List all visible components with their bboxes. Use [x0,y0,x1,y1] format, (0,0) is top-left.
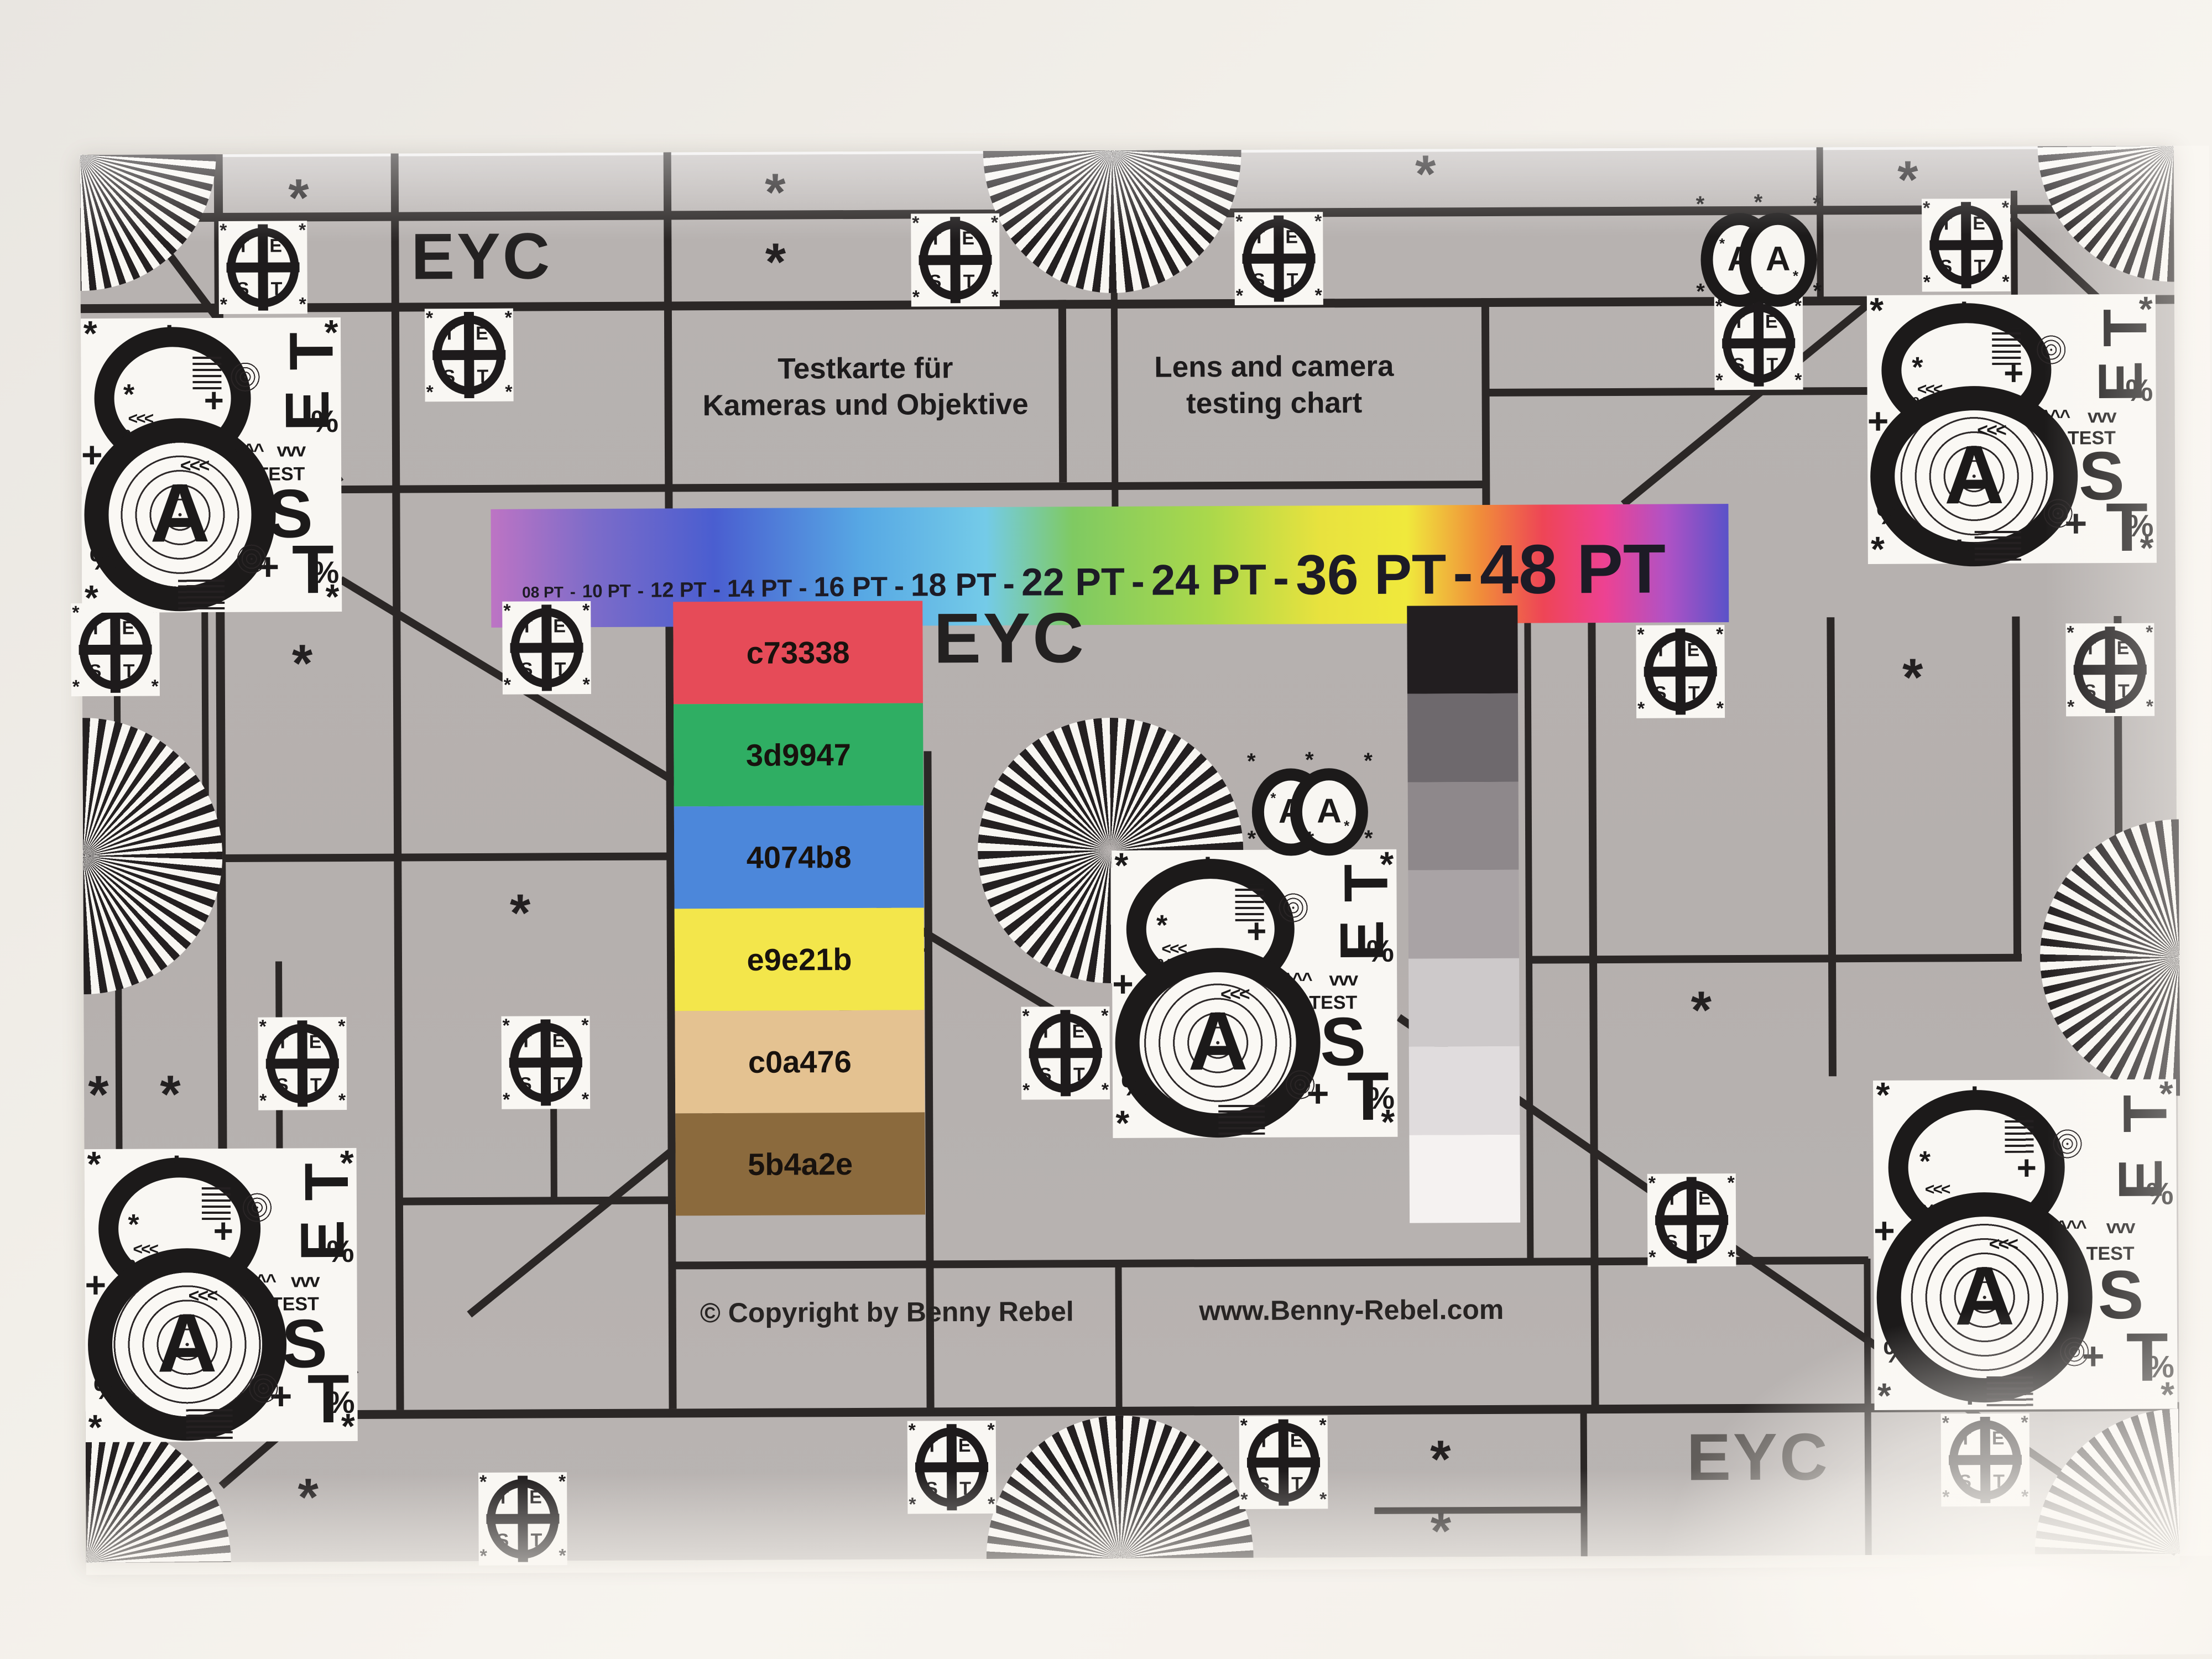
test-roundel-cross-horizontal [1949,1455,2022,1465]
resolution-stripes [178,580,225,609]
percent-mark: % [1366,936,1394,967]
asterisk-icon: * [1114,848,1128,883]
test-roundel: T E S T * * * * [2065,623,2154,717]
asterisk-icon: * [1247,750,1256,773]
concentric-target [231,362,260,392]
resolution-stripes [1992,328,2021,365]
asterisk-icon: * [1813,280,1822,302]
asterisk-icon: * [1648,1174,1656,1193]
twin-8a-mark: A * A * * * * * * * [1251,762,1368,838]
asterisk-icon: * [1912,353,1923,382]
asterisk-icon: * [84,316,97,351]
asterisk-icon: * [582,1090,589,1109]
pt-separator: - [570,584,576,601]
asterisk-icon: * [2146,623,2153,642]
plus-cross: + [1874,1212,1895,1249]
grid-line [1486,387,1867,397]
letter-a: A [1188,999,1248,1082]
asterisk-icon: * [72,603,79,622]
test-roundel-letter: E [962,228,974,249]
grid-line [2012,617,2021,958]
big-8a-test-box: * * * * * <<< % + A T E ^^^ vvv <<< TEST… [1112,849,1397,1138]
plus-cross: + [1197,847,1219,884]
test-letter-t: T [1335,864,1397,902]
test-letter-t: T [296,1163,358,1201]
asterisk-icon: * [1923,199,1930,217]
asterisk-mark: * [510,887,531,940]
asterisk-icon: * [259,1092,267,1110]
title-english-line2: testing chart [1063,384,1486,422]
asterisk-icon: * [259,1018,266,1036]
test-roundel-letter: S [1253,270,1265,291]
resolution-stripes [192,353,221,389]
test-letter-t: T [2094,309,2156,347]
pt-labels-row: 08 PT - 10 PT - 12 PT - 14 PT - 16 PT - … [491,534,1729,609]
test-roundel-letter: E [2117,638,2130,659]
patch-hex-label: c73338 [747,634,850,671]
asterisk-icon: * [2002,199,2009,217]
concentric-target [2036,335,2066,364]
pt-label: 08 PT [522,585,564,600]
test-roundel-letter: T [963,271,975,293]
asterisk-icon: * [1101,1006,1108,1025]
test-roundel-letter: T [1258,1431,1270,1452]
asterisk-icon: * [502,1016,509,1035]
asterisk-mark: * [1897,154,1918,207]
asterisk-mark: * [160,1068,181,1121]
test-roundel-cross-horizontal [1722,338,1795,349]
test-roundel-cross-horizontal [79,645,152,655]
test-roundel-letter: S [497,1530,509,1552]
asterisk-icon: * [123,380,134,409]
asterisk-icon: * [128,1211,139,1239]
test-roundel-letter: T [1993,1471,2005,1493]
plus-cross: + [1192,1104,1214,1140]
asterisk-icon: * [1648,1248,1656,1267]
test-roundel-letter: T [1733,311,1745,333]
asterisk-icon: * [909,1495,916,1514]
patch-hex-label: c0a476 [748,1044,852,1080]
chart-group: 08 PT - 10 PT - 12 PT - 14 PT - 16 PT - … [0,0,2212,1659]
big-8a-test-box: * * * * * <<< % + A T E ^^^ vvv <<< TEST… [1867,294,2157,564]
letter-a: A [157,1301,217,1384]
test-roundel-letter: S [237,279,249,300]
test-roundel-letter: T [237,236,249,257]
letter-a: A [1944,433,2004,516]
gray-step [1408,782,1519,870]
big-8a-test-box: * * * * * <<< % + A T E ^^^ vvv <<< TEST… [81,317,342,613]
pt-separator: - [713,578,721,601]
percent-mark: % [90,544,117,575]
chevrons-left: <<< [1989,1235,2017,1254]
asterisk-icon: * [1942,1413,1949,1432]
eyc-text-center: EYC [933,603,1086,674]
asterisk-mark: * [292,637,313,690]
test-roundel-letter: T [1960,1428,1971,1449]
test-roundel: T E S T * * * * [478,1472,567,1566]
patch-hex-label: 4074b8 [747,839,852,875]
asterisk-icon: * [1236,286,1243,305]
test-roundel-letter: E [1973,213,1985,234]
chevrons-up: ^^^ [246,1271,275,1290]
test-roundel-cross-horizontal [1929,240,2002,251]
chevrons-up: ^^^ [233,441,263,460]
asterisk-icon: * [72,677,80,696]
test-roundel-letter: T [123,661,135,682]
pt-label: 16 PT [813,573,888,601]
asterisk-icon: * [1923,273,1931,291]
asterisk-icon: * [1248,828,1256,850]
title-german: Testkarte für Kameras und Objektive [668,349,1063,424]
asterisk-icon: * [1022,1081,1030,1100]
grid-line [1588,618,1599,1408]
asterisk-icon: * [1870,293,1884,328]
asterisk-icon: * [1793,268,1798,285]
test-roundel-letter: S [929,271,942,293]
test-roundel: T E S T * * * * [1922,199,2011,292]
test-roundel-cross-horizontal [432,350,505,361]
percent-mark: % [93,1373,121,1404]
chevrons-left: <<< [180,456,208,475]
test-roundel-letter: T [926,1435,938,1457]
pt-label: 10 PT [582,582,631,600]
grid-line [1580,1408,1588,1556]
test-roundel: T E S T * * * * [1941,1413,2030,1507]
patch-hex-label: e9e21b [747,941,852,978]
asterisk-icon: * [1305,749,1314,771]
test-roundel-cross-horizontal [1242,253,1315,264]
grid-line [1530,954,2022,964]
asterisk-icon: * [909,1421,916,1440]
letter-a: A [1766,239,1791,279]
plus-cross: + [159,315,180,352]
concentric-target [1285,1070,1315,1100]
test-roundel-cross-horizontal [915,1462,988,1473]
pt-separator: - [1453,542,1473,603]
test-roundel-letter: T [1766,354,1778,376]
patch-hex-label: 5b4a2e [748,1146,853,1182]
test-roundel-letter: E [476,323,488,345]
asterisk-icon: * [991,288,998,306]
pt-label: 18 PT [911,569,997,602]
asterisk-mark: * [1691,984,1712,1037]
asterisk-icon: * [505,383,512,401]
test-roundel: T E S T * * * * [1239,1416,1328,1509]
grid-line [1115,1264,1122,1410]
test-roundel-cross-horizontal [2074,665,2147,675]
test-roundel-letter: T [1073,1064,1085,1086]
plus-cross: + [1112,966,1134,1002]
asterisk-icon: * [1314,212,1322,231]
asterisk-icon: * [582,601,589,620]
resolution-stripes [1986,1376,2033,1406]
asterisk-icon: * [1364,827,1373,849]
test-roundel-cross-horizontal [1655,1215,1728,1225]
asterisk-icon: * [299,221,306,239]
color-patch-red: c73338 [673,601,923,704]
asterisk-icon: * [1877,1378,1891,1413]
asterisk-icon: * [85,580,98,615]
color-patch-blue: 4074b8 [674,805,924,909]
percent-mark: % [327,1387,355,1418]
test-roundel-letter: S [1654,683,1667,705]
test-roundel-cross-horizontal [227,262,300,273]
test-roundel-letter: S [1959,1471,1971,1493]
concentric-target [2053,1129,2083,1159]
grid-line [400,1196,672,1205]
asterisk-icon: * [1696,280,1705,302]
pt-label: 14 PT [727,576,792,601]
test-roundel-letter: T [2085,638,2096,659]
test-roundel-letter: E [1072,1021,1085,1042]
grid-line [1864,1259,1871,1555]
test-roundel-letter: E [1992,1428,2005,1449]
asterisk-mark: * [1902,651,1923,705]
grayscale-step-wedge [1407,606,1520,1223]
test-roundel-letter: E [529,1486,542,1508]
chevrons-down: vvv [2088,407,2116,426]
concentric-target [1279,893,1308,922]
test-roundel-letter: S [1039,1064,1052,1086]
test-roundel-letter: S [1732,354,1745,376]
grid-line [1827,617,1837,1076]
test-roundel-letter: S [519,1074,532,1095]
asterisk-icon: * [1364,750,1373,772]
chevrons-down: vvv [276,441,305,460]
test-roundel-letter: E [269,235,282,257]
test-roundel-cross-horizontal [1644,666,1717,677]
test-roundel-letter: T [277,1031,289,1053]
test-roundel-letter: S [442,366,455,388]
pt-separator: - [1131,562,1145,602]
plus-cross: + [155,579,176,615]
plus-cross: + [81,436,103,473]
website-text: www.Benny-Rebel.com [1125,1293,1578,1327]
test-roundel: T E S T * * * * [1636,625,1725,718]
grid-line [1524,619,1533,1260]
test-roundel-letter: S [1665,1231,1678,1253]
asterisk-icon: * [426,383,433,401]
test-roundel-letter: T [1699,1231,1711,1253]
test-roundel-letter: T [1291,1473,1303,1495]
asterisk-icon: * [220,295,227,314]
chevrons-left: <<< [189,1286,217,1305]
plus-cross: + [161,1408,183,1445]
chevrons-left: <<< [1925,1182,1949,1198]
test-roundel-cross-horizontal [1029,1048,1102,1058]
asterisk-icon: * [1319,1490,1327,1509]
asterisk-icon: * [559,1546,566,1565]
asterisk-icon: * [1754,282,1763,304]
plus-cross: + [1964,1077,1985,1113]
asterisk-icon: * [426,309,433,327]
test-roundel-letter: E [1765,311,1778,333]
test-roundel-letter: T [1253,227,1265,248]
big-8a-test-box: * * * * * <<< % + A T E ^^^ vvv <<< TEST… [1873,1079,2178,1410]
letter-a: A [150,471,210,554]
asterisk-icon: * [1715,371,1723,390]
test-roundel-letter: T [444,323,455,345]
asterisk-icon: * [1919,1147,1931,1176]
test-roundel-letter: E [553,615,566,637]
test-roundel-letter: T [521,616,533,638]
asterisk-icon: * [1156,911,1167,940]
test-roundel-letter: E [122,618,134,639]
color-patch-brown: 5b4a2e [675,1112,925,1215]
chevrons-up: ^^^ [1282,971,1312,989]
title-german-line1: Testkarte für [668,349,1062,388]
pt-separator: - [894,571,904,601]
chevrons-left: <<< [1977,421,2005,440]
asterisk-mark: * [1430,1433,1451,1486]
asterisk-mark: * [298,1471,319,1524]
asterisk-icon: * [1876,1077,1890,1113]
eyc-text-top: EYC [411,223,552,289]
plus-cross: + [2017,1151,2037,1186]
test-roundel-letter: T [531,1530,542,1551]
asterisk-mark: * [1431,1505,1452,1558]
test-roundel: T E S T * * * * [502,601,591,695]
asterisk-icon: * [1696,193,1705,215]
test-roundel-letter: T [1655,640,1667,661]
asterisk-icon: * [88,1410,102,1445]
test-roundel-letter: T [959,1478,971,1500]
chevrons-up: ^^^ [2056,1218,2086,1237]
pt-separator: - [638,582,644,601]
chevrons-left: <<< [1220,985,1249,1004]
asterisk-icon: * [152,677,159,696]
color-patch-yellow: e9e21b [675,907,925,1011]
asterisk-icon: * [991,213,998,232]
chevrons-down: vvv [291,1271,319,1290]
asterisk-icon: * [505,309,512,327]
pt-label: 48 PT [1480,534,1666,604]
test-roundel-letter: T [555,659,566,680]
test-roundel-letter: E [1285,226,1298,248]
asterisk-icon: * [1719,235,1725,252]
pt-separator: - [1003,566,1015,601]
test-roundel-cross-horizontal [266,1058,339,1069]
asterisk-icon: * [87,1146,101,1182]
test-roundel: T E S T * * * * [425,309,514,402]
test-roundel-letter: T [554,1073,565,1095]
asterisk-icon: * [504,676,511,695]
asterisk-icon: * [1794,371,1802,390]
asterisk-icon: * [2002,273,2009,291]
asterisk-icon: * [1102,1081,1109,1099]
gray-step [1409,1046,1520,1135]
test-roundel: T E S T * * * * [1714,296,1803,390]
asterisk-icon: * [1270,790,1276,807]
percent-mark: % [2146,1178,2174,1209]
test-letter-t: T [2114,1094,2176,1133]
test-roundel-letter: S [520,659,533,681]
test-roundel: T E S T * * * * [1021,1006,1110,1100]
asterisk-icon: * [1813,192,1822,215]
concentric-target [236,544,266,573]
asterisk-icon: * [338,1017,345,1036]
test-roundel-cross-horizontal [486,1514,559,1524]
letter-a: A [1317,791,1342,831]
test-roundel-letter: T [930,228,941,249]
plus-cross: + [1959,1376,1981,1413]
test-roundel: T E S T * * * * [218,221,307,314]
test-roundel-letter: S [1939,256,1952,278]
color-patch-green: 3d9947 [674,703,924,806]
test-roundel-letter: T [497,1487,509,1509]
asterisk-icon: * [220,221,227,240]
asterisk-icon: * [1871,531,1885,567]
asterisk-icon: * [1314,286,1322,305]
test-roundel-cross-horizontal [509,1057,582,1068]
plus-cross: + [1949,530,1970,566]
asterisk-icon: * [1319,1416,1326,1434]
chevrons-up: ^^^ [2040,408,2070,426]
photo-of-test-chart: 08 PT - 10 PT - 12 PT - 14 PT - 16 PT - … [0,0,2212,1659]
asterisk-icon: * [503,602,510,620]
asterisk-mark: * [288,171,309,225]
test-roundel: T E S T * * * * [911,213,1000,307]
grid-line [1374,1506,1584,1514]
copyright-text: © Copyright by Benny Rebel [682,1295,1092,1329]
eyc-text-bottom: EYC [1687,1423,1830,1490]
asterisk-icon: * [2067,697,2074,716]
plus-cross: + [1867,403,1889,439]
test-roundel-letter: S [2084,681,2096,702]
asterisk-icon: * [2021,1413,2028,1432]
title-english-line1: Lens and camera [1062,348,1485,386]
percent-mark: % [2125,375,2153,406]
asterisk-icon: * [1240,1490,1248,1509]
chevrons-down: vvv [2106,1218,2135,1237]
asterisk-icon: * [338,1091,346,1110]
concentric-target [2059,1337,2089,1366]
test-roundel-letter: S [1257,1474,1270,1495]
test-roundel-letter: T [1688,682,1700,704]
percent-mark: % [2147,1352,2174,1383]
test-roundel: T E S T * * * * [907,1421,997,1514]
asterisk-icon: * [583,675,590,694]
test-roundel-letter: S [276,1074,289,1096]
concentric-target [2043,498,2073,528]
test-roundel-letter: E [1290,1430,1303,1452]
gray-step [1409,1134,1520,1223]
asterisk-icon: * [1344,817,1349,834]
grid-line [2011,191,2018,297]
gray-step [1408,958,1520,1046]
title-english: Lens and camera testing chart [1062,348,1486,422]
asterisk-icon: * [1637,700,1645,718]
asterisk-icon: * [1716,625,1723,644]
pt-label: 24 PT [1151,558,1266,602]
resolution-stripes [2005,1117,2034,1153]
percent-mark: % [1367,1083,1395,1114]
asterisk-icon: * [1717,699,1724,718]
asterisk-icon: * [2067,623,2074,642]
concentric-target [242,1192,272,1222]
test-roundel-letter: E [309,1031,322,1053]
twin-8a-mark: A * A * * * * * * * [1700,206,1817,289]
plus-cross: + [85,1266,106,1303]
percent-mark: % [2126,510,2153,541]
test-roundel-cross-horizontal [1247,1457,1320,1468]
percent-mark: % [1121,1070,1149,1100]
gray-step [1407,693,1519,782]
asterisk-icon: * [299,295,306,314]
test-roundel-letter: T [1974,256,1985,278]
test-roundel-letter: E [1687,639,1700,661]
resolution-stripes [1975,531,2021,561]
